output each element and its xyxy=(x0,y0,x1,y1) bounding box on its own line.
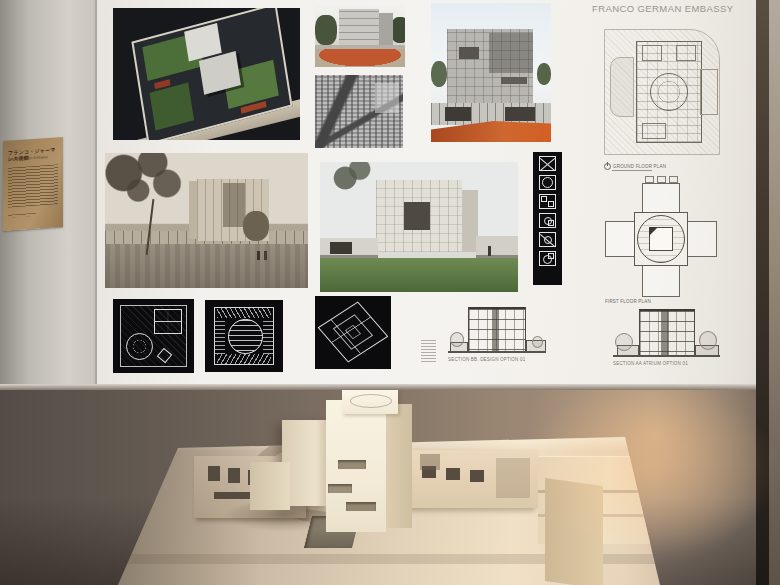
tree xyxy=(615,333,633,351)
section-core xyxy=(661,309,669,355)
exhibit-label-panel: フランコ・ジャーマン大使館 Franco German Embassy xyxy=(3,137,63,231)
parti-diagram-strip xyxy=(533,152,562,285)
render-wall-opening xyxy=(445,107,471,121)
hatch xyxy=(215,318,225,354)
model-opening xyxy=(420,454,440,470)
render-wall-opening xyxy=(330,242,352,254)
section-core xyxy=(492,307,499,351)
model-step xyxy=(496,458,530,498)
hatch xyxy=(217,354,271,364)
plan-room xyxy=(676,45,696,61)
tree xyxy=(326,162,374,200)
plan-grid-block xyxy=(154,309,182,334)
render-wall-opening xyxy=(505,107,535,121)
parti-icon-x-with-circle xyxy=(539,232,556,247)
first-floor-plan: FIRST FLOOR PLAN xyxy=(605,183,715,295)
ground-floor-plan: GROUND FLOOR PLAN xyxy=(600,25,725,173)
model-window-slot xyxy=(338,460,366,469)
section-caption: SECTION BB. DESIGN OPTION 01 xyxy=(448,357,525,362)
parti-icon-square-circle xyxy=(539,175,556,190)
scale-bar xyxy=(612,170,652,171)
board-title: FRANCO GERMAN EMBASSY xyxy=(592,3,762,16)
tree xyxy=(243,211,269,241)
exhibition-photo: FRANCO GERMAN EMBASSY フランコ・ジャーマン大使館 Fran… xyxy=(0,0,780,585)
tree xyxy=(450,332,464,347)
small-spec-label xyxy=(421,340,436,363)
paved-plaza xyxy=(105,243,308,288)
hatch xyxy=(217,308,271,318)
axonometric-wireframe xyxy=(318,301,389,362)
parti-icon-circle-with-rooms xyxy=(539,213,556,228)
person-figure xyxy=(257,251,260,260)
model-building xyxy=(250,390,465,542)
render-window-recess xyxy=(459,47,479,59)
black-site-plan-panel xyxy=(113,299,194,373)
plan-west-wing xyxy=(610,57,634,117)
model-tower-side xyxy=(386,404,412,528)
roof-mark xyxy=(669,176,678,183)
plan-room xyxy=(642,45,662,61)
label-footer-lines xyxy=(8,213,36,218)
render-recess xyxy=(404,202,430,230)
sepia-rendering xyxy=(105,153,308,288)
north-arrow-icon xyxy=(604,163,611,170)
ground-line xyxy=(448,351,546,353)
tree xyxy=(699,331,717,350)
section-caption: SECTION AA ATRIUM OPTION 01 xyxy=(613,361,688,366)
render-window-recess xyxy=(501,77,527,84)
roof-mark xyxy=(657,176,666,183)
right-wall-edge xyxy=(769,0,780,585)
render-building-shade xyxy=(223,183,245,227)
person-figure xyxy=(488,246,491,256)
wall-seam xyxy=(756,0,769,585)
roof-mark xyxy=(645,176,654,183)
person-figure xyxy=(264,251,267,260)
site-lawn xyxy=(150,82,195,130)
lawn-rendering xyxy=(320,162,518,292)
model-window-slot xyxy=(328,484,352,493)
tree xyxy=(431,61,447,87)
plan-caption-row: GROUND FLOOR PLAN xyxy=(604,163,666,170)
plan-caption: FIRST FLOOR PLAN xyxy=(605,299,651,304)
black-axonometric-panel xyxy=(315,296,391,369)
tree xyxy=(537,63,551,85)
render-building-shade xyxy=(489,33,533,73)
tree xyxy=(391,17,405,43)
hatch xyxy=(263,318,273,354)
plan-room xyxy=(642,123,666,139)
hero-rendering xyxy=(431,3,551,142)
model-low-block xyxy=(250,462,290,510)
model-roof-circle xyxy=(350,394,392,408)
tree-canopy xyxy=(105,153,191,215)
orange-plaza xyxy=(315,49,405,67)
model-opening xyxy=(470,470,484,482)
parti-icon-four-rooms xyxy=(539,194,556,209)
ground-line xyxy=(613,355,720,357)
entry-photo xyxy=(315,5,405,67)
plan-caption: GROUND FLOOR PLAN xyxy=(613,164,666,169)
model-window-slot xyxy=(346,502,376,511)
model-low-block xyxy=(410,442,460,504)
parti-icon-square-x xyxy=(539,156,556,171)
map-light-area xyxy=(375,83,399,113)
plan-circle xyxy=(126,333,153,360)
tree xyxy=(315,15,337,45)
plan-east-wing xyxy=(700,69,718,115)
section-drawing-left: SECTION BB. DESIGN OPTION 01 xyxy=(448,304,546,366)
aerial-site-rendering xyxy=(113,8,300,140)
photo-building-side xyxy=(379,13,393,47)
lawn xyxy=(320,258,518,292)
black-roof-plan-panel xyxy=(205,300,283,372)
render-wing xyxy=(476,236,518,258)
plan-central-circle xyxy=(650,73,688,111)
aerial-city-map xyxy=(315,75,403,148)
tree xyxy=(532,336,543,348)
parti-icon-circle-plan xyxy=(539,251,556,266)
side-board-edge xyxy=(545,478,603,585)
photo-building xyxy=(339,9,379,47)
section-drawing-right: SECTION AA ATRIUM OPTION 01 xyxy=(613,303,720,369)
label-body-text-lines xyxy=(8,164,58,207)
plan-central-circle xyxy=(228,319,263,354)
wall-crease xyxy=(95,0,97,390)
